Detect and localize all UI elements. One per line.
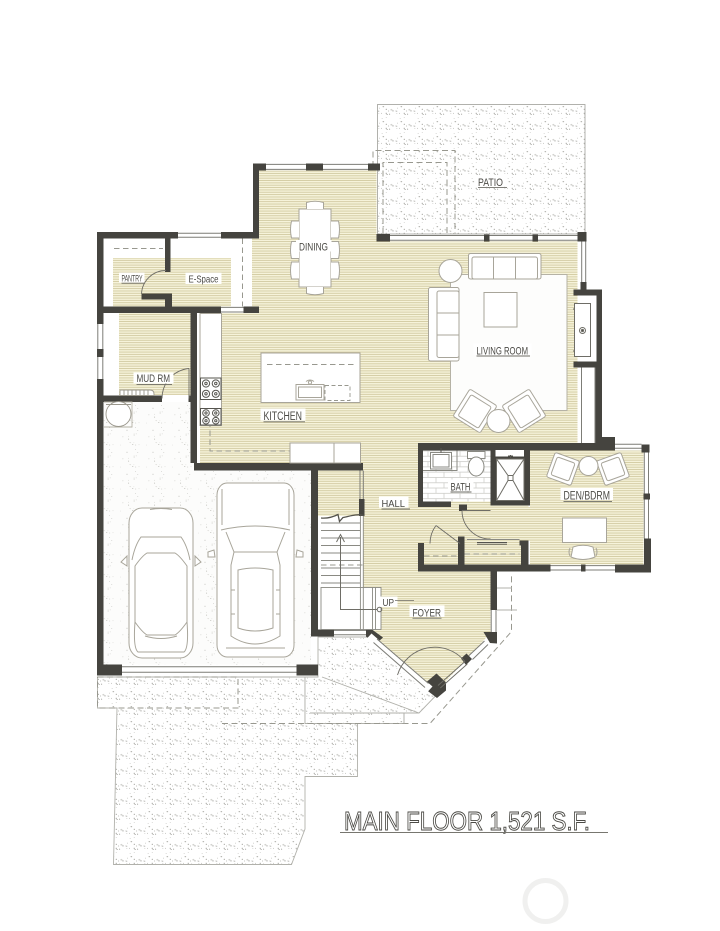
svg-text:MAIN FLOOR 1,521 S.F.: MAIN FLOOR 1,521 S.F. — [344, 806, 590, 836]
svg-text:MUD RM: MUD RM — [137, 373, 171, 385]
svg-text:DEN/BDRM: DEN/BDRM — [564, 489, 611, 503]
svg-text:HALL: HALL — [382, 498, 406, 510]
svg-text:E-Space: E-Space — [189, 274, 219, 286]
svg-text:FOYER: FOYER — [413, 608, 442, 620]
svg-text:DINING: DINING — [299, 242, 328, 254]
svg-text:KITCHEN: KITCHEN — [264, 411, 303, 423]
svg-text:UP: UP — [383, 598, 395, 609]
